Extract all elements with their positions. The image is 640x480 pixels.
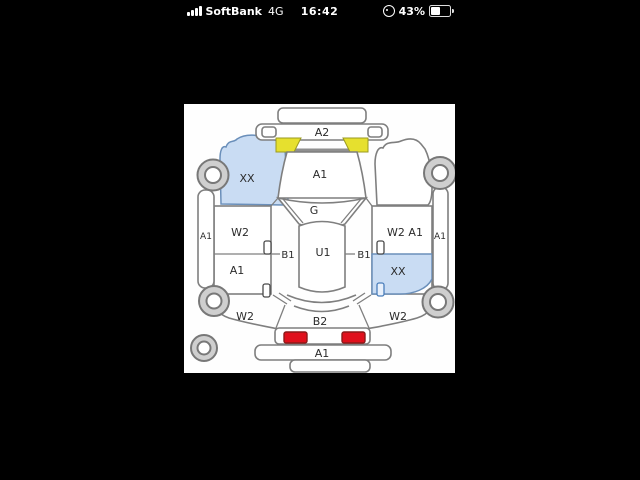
rear-window-top-arc [287,295,356,303]
status-bar: SoftBank 4G 16:42 43% [184,0,455,22]
orientation-lock-icon [383,5,395,17]
left-quarter-label: W2 [236,310,254,323]
spare-wheel-icon [191,335,217,361]
right-front-door-label: W2 A1 [387,226,423,239]
hood-label: A1 [313,168,328,181]
license-plate-garnish [290,360,370,372]
left-front-fender-label: XX [239,172,255,185]
left-sill-label: A1 [200,232,212,242]
vehicle-damage-diagram: A2 A1 XX G U1 B1 B1 W2 A1 A1 W2 A1 XX A1… [184,104,455,373]
left-headlight [262,127,276,137]
front-right-wheel-icon [424,157,455,189]
vehicle-diagram-panel: A2 A1 XX G U1 B1 B1 W2 A1 A1 W2 A1 XX A1… [184,104,455,373]
rear-right-wheel-icon [423,287,454,318]
back-panel-left-edge [276,305,285,328]
left-c-pillar-line [273,293,291,304]
screenshot-stage: SoftBank 4G 16:42 43% [0,0,640,480]
battery-icon [429,5,451,17]
left-pillar-label: B1 [281,250,294,261]
left-rear-door-label: A1 [230,264,245,277]
clock-label: 16:42 [184,5,455,18]
back-panel-right-edge [359,305,369,328]
right-sill-label: A1 [434,232,446,242]
right-quarter-label: W2 [389,310,407,323]
left-tail-light [284,332,307,343]
rear-left-wheel-icon [199,286,229,316]
front-garnish-label: A2 [315,126,330,139]
right-body-join-line [366,198,372,206]
front-top-garnish [278,108,366,123]
back-panel-label: B2 [313,315,328,328]
front-left-wheel-icon [198,160,229,191]
right-rear-door-label: XX [390,265,406,278]
right-front-door-handle [377,241,384,254]
right-pillar-label: B1 [357,250,370,261]
left-door-block [214,206,271,294]
left-rear-door-handle [263,284,270,297]
left-front-door-label: W2 [231,226,249,239]
left-front-door-handle [264,241,271,254]
right-tail-light [342,332,365,343]
windshield-label: G [310,204,319,217]
rear-bumper-label: A1 [315,347,330,360]
rear-window-bottom-arc [294,306,349,312]
roof-label: U1 [315,246,330,259]
right-headlight [368,127,382,137]
right-rear-door-handle [377,283,384,296]
